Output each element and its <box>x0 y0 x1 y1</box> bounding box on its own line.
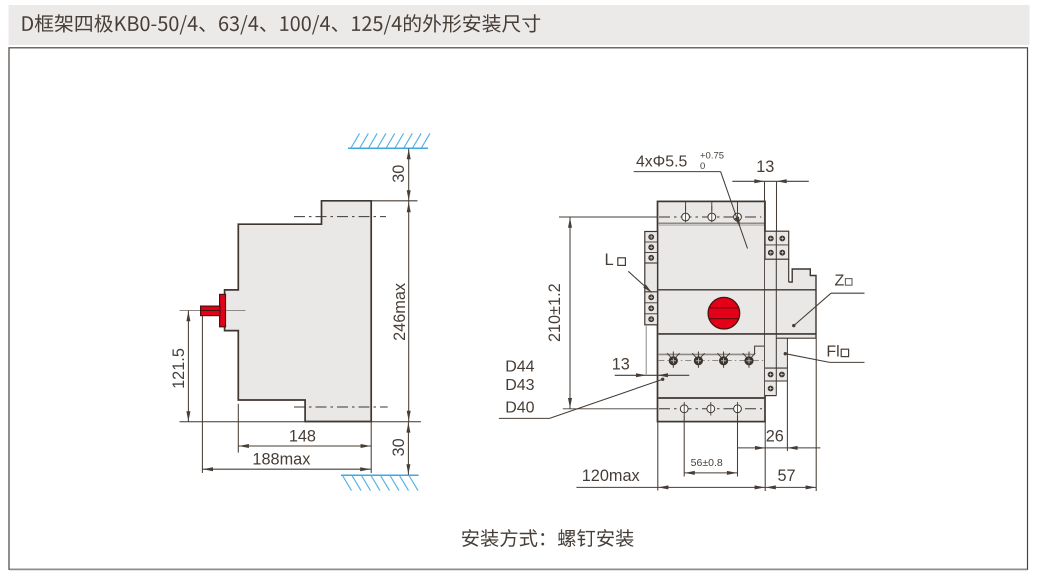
svg-text:56±0.8: 56±0.8 <box>691 457 723 469</box>
svg-text:57: 57 <box>777 467 795 485</box>
svg-text:210±1.2: 210±1.2 <box>546 283 564 342</box>
svg-text:26: 26 <box>766 428 784 446</box>
svg-text:121.5: 121.5 <box>170 348 188 389</box>
svg-text:L: L <box>605 251 614 269</box>
svg-text:Fl: Fl <box>826 344 839 361</box>
svg-text:13: 13 <box>756 158 774 176</box>
svg-text:246max: 246max <box>391 283 409 341</box>
svg-text:+0.75: +0.75 <box>700 151 724 162</box>
svg-text:Z: Z <box>835 273 845 290</box>
svg-text:148: 148 <box>289 428 316 446</box>
svg-text:D43: D43 <box>505 377 534 394</box>
svg-text:4xΦ5.5: 4xΦ5.5 <box>636 154 687 171</box>
svg-text:120max: 120max <box>582 467 640 485</box>
svg-text:188max: 188max <box>252 451 310 469</box>
svg-text:30: 30 <box>390 165 408 183</box>
svg-text:D44: D44 <box>505 359 534 376</box>
svg-text:D40: D40 <box>505 399 534 416</box>
svg-text:13: 13 <box>612 355 630 373</box>
svg-text:0: 0 <box>700 161 705 172</box>
svg-text:30: 30 <box>390 438 408 456</box>
